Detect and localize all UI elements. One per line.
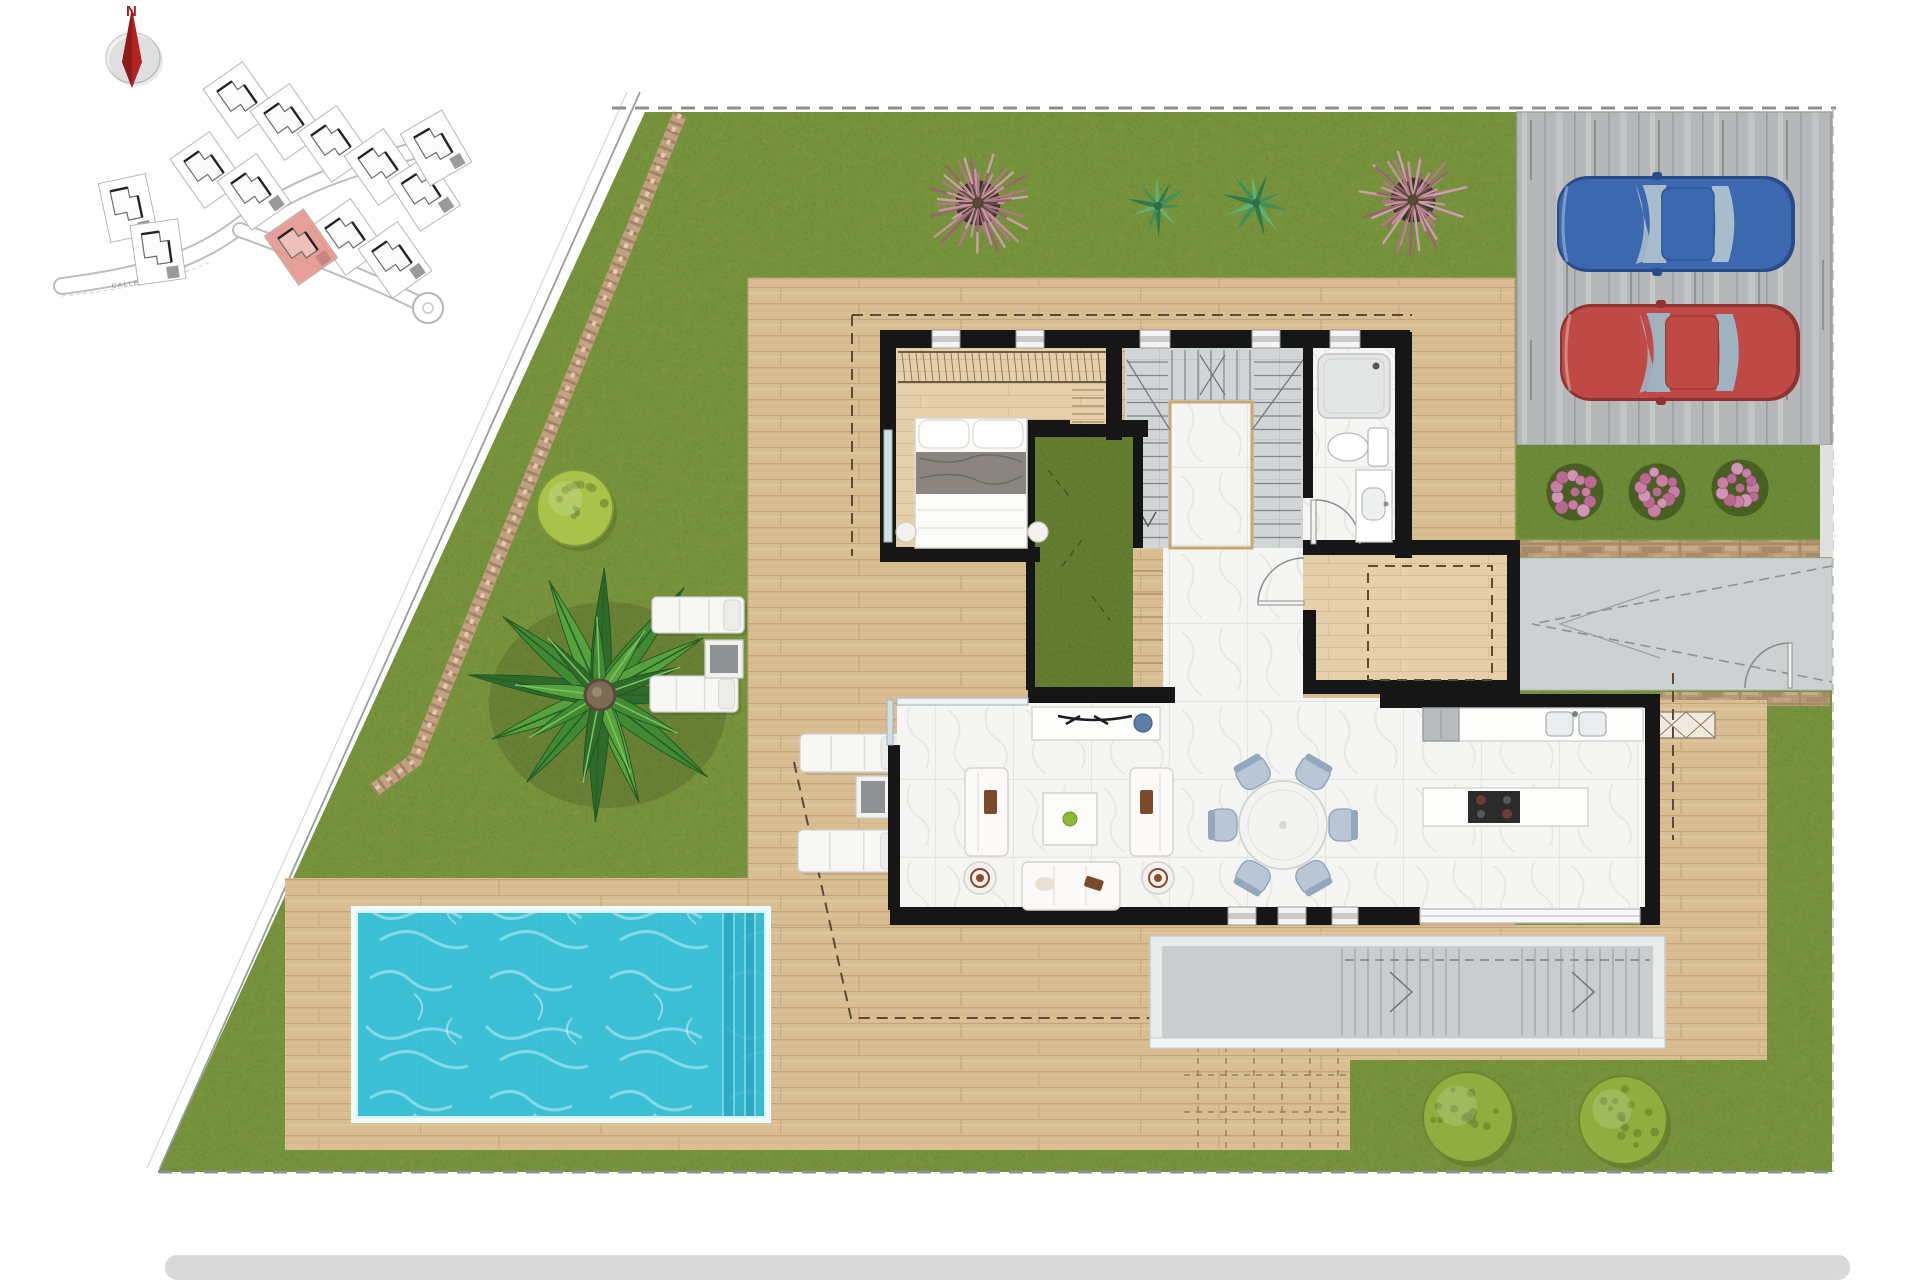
site-map-plot [130,219,186,285]
pool-steps [723,912,765,1117]
red-car [1560,300,1800,405]
window [932,330,960,348]
garage-room-floor [1303,548,1515,688]
pool-water [357,912,765,1117]
east-garden-strip [1517,445,1833,706]
dining-chair [1329,809,1358,841]
shower [1318,354,1390,418]
sofa [965,768,1008,856]
site-plan-drawing: CALLE N [0,0,1920,1280]
sun-lounger [652,597,747,636]
flower-cluster [1712,460,1769,517]
tv-console [1032,707,1160,740]
window [1252,330,1280,348]
sofa [1022,862,1120,910]
round-side-table [964,862,996,894]
stair-void [1170,402,1252,548]
window [1278,907,1306,925]
greatroom-west-glazing [887,700,893,745]
blue-car [1557,172,1795,276]
staircase [1125,348,1303,548]
south-terrace [1150,936,1665,1048]
compass: N [106,3,163,88]
bed [896,418,1048,548]
driveway [1517,112,1832,445]
side-table [705,640,743,678]
floor-plan-page: CALLE N [0,0,1920,1280]
decor-bowl [1134,714,1152,732]
footer-bar [165,1255,1850,1280]
apple-decor [1063,812,1077,826]
sun-lounger [650,676,741,715]
entrance-path [1517,558,1832,690]
window [1228,907,1256,925]
bedside-stool [1028,522,1048,542]
window [1332,907,1358,925]
coffee-table [1043,793,1097,845]
side-table [856,776,890,818]
bathroom-sink [1356,470,1392,542]
window [1330,330,1360,348]
stone-wall [1517,540,1820,557]
flower-cluster [1629,464,1686,521]
north-glass-wall [897,698,1028,705]
sofa [1130,768,1173,856]
bedside-stool [896,522,916,542]
north-label: N [126,3,137,20]
bedroom-slider [884,430,892,542]
window [1140,330,1170,348]
cooktop [1468,791,1520,823]
roundabout [413,293,443,323]
site-map-inset: CALLE [62,62,472,323]
round-side-table [1142,862,1174,894]
dining-chair [1208,809,1237,841]
courtyard-steps [1133,548,1163,687]
swimming-pool [351,906,771,1123]
deck-vent-box [1657,712,1715,738]
window [1016,330,1044,348]
flower-cluster [1547,464,1604,521]
